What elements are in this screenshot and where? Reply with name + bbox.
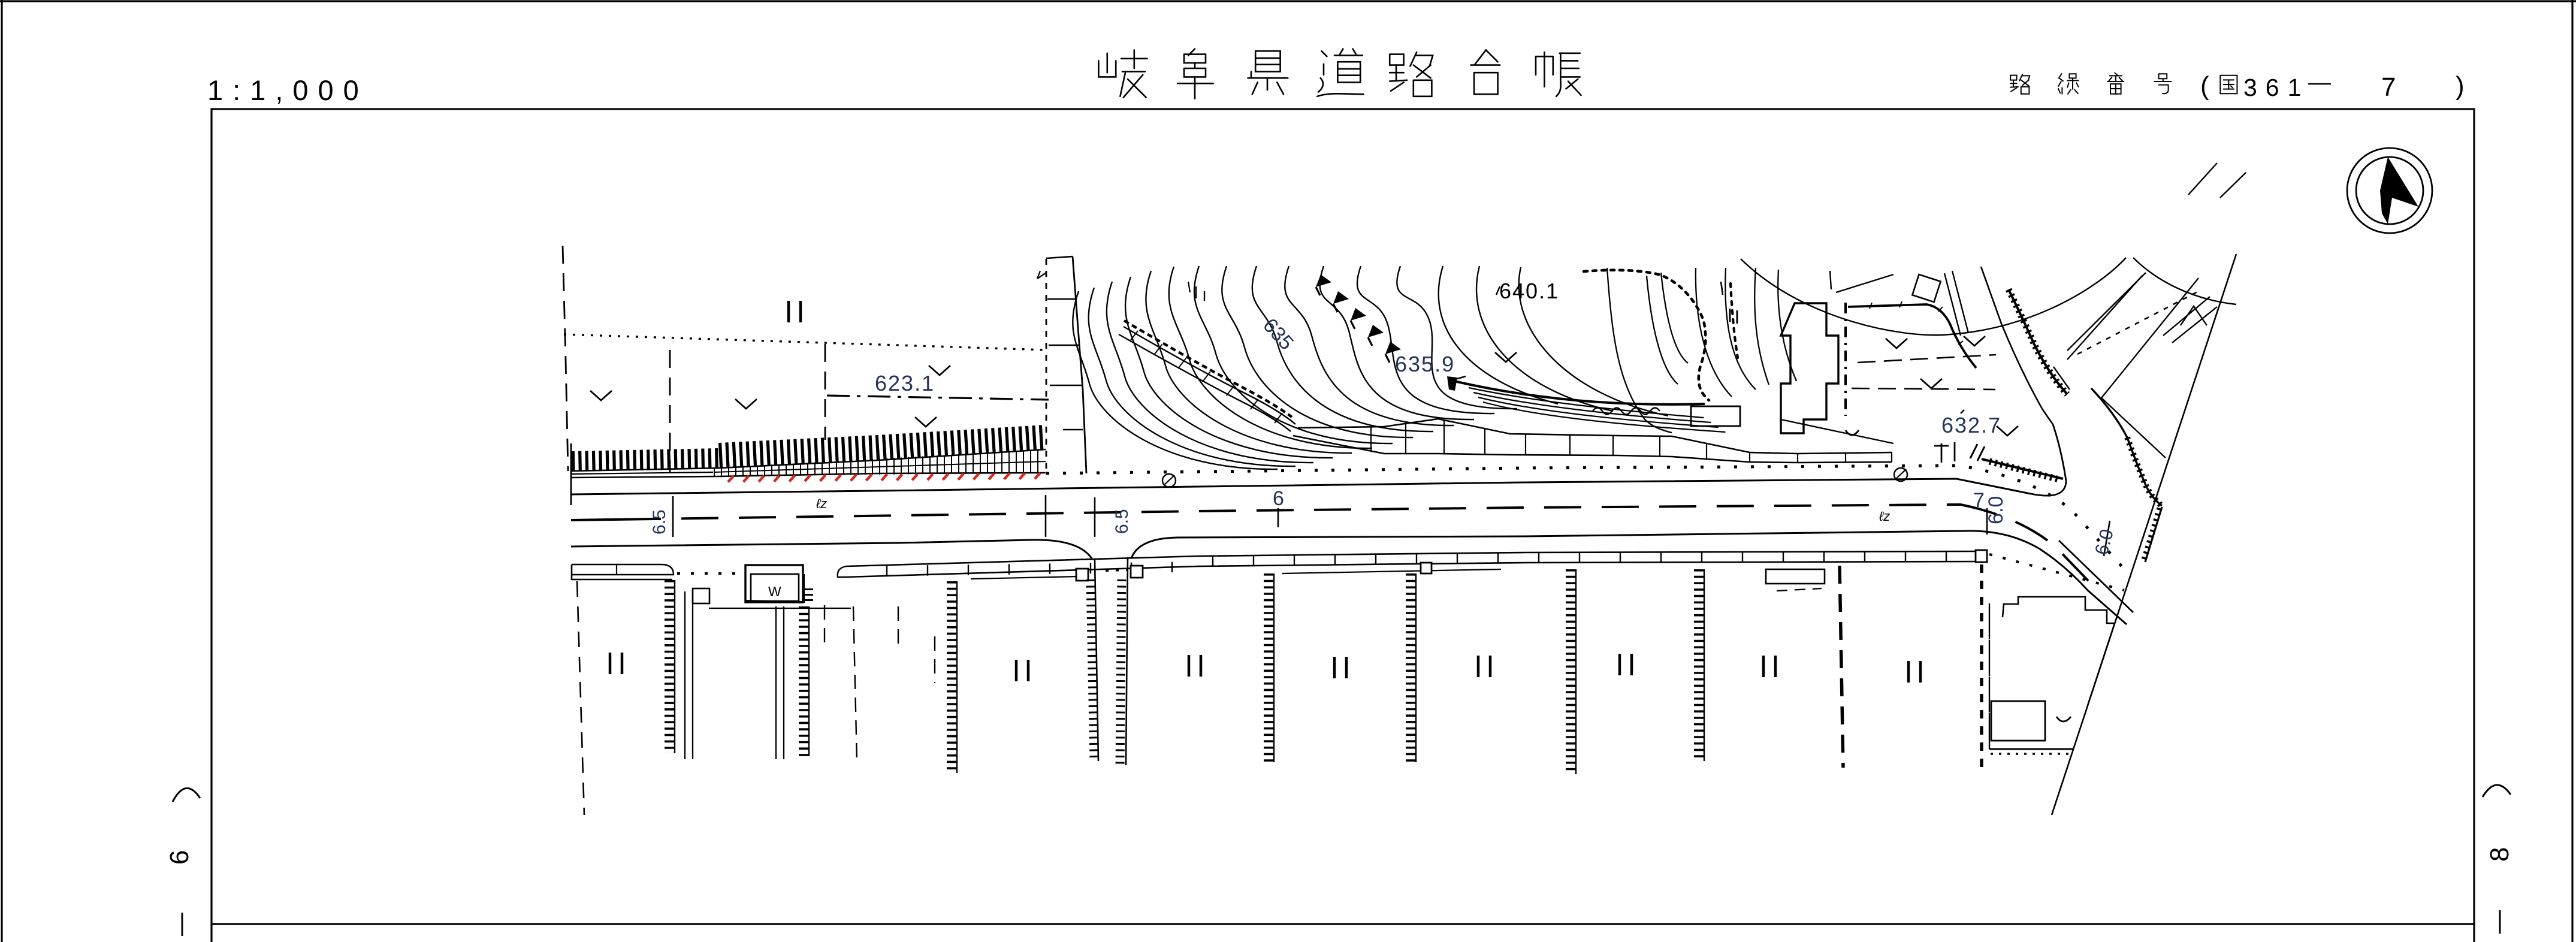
svg-text:W: W bbox=[768, 584, 781, 599]
svg-text:623.1: 623.1 bbox=[875, 371, 935, 395]
svg-text:7: 7 bbox=[1973, 489, 1985, 512]
svg-text:6.5: 6.5 bbox=[650, 509, 669, 535]
svg-text:640.1: 640.1 bbox=[1499, 279, 1559, 303]
svg-text:7: 7 bbox=[2381, 73, 2396, 102]
svg-text:6: 6 bbox=[165, 850, 194, 865]
svg-text:6.5: 6.5 bbox=[1112, 509, 1132, 534]
svg-text:ℓz: ℓz bbox=[1879, 509, 1890, 524]
svg-text:6.0: 6.0 bbox=[1985, 496, 2007, 524]
svg-text:361: 361 bbox=[2243, 74, 2309, 101]
svg-text:8: 8 bbox=[2485, 847, 2514, 862]
svg-text:): ) bbox=[2456, 71, 2465, 101]
svg-text:6: 6 bbox=[1273, 487, 1284, 510]
svg-text:ℓz: ℓz bbox=[816, 496, 827, 511]
svg-text:635.9: 635.9 bbox=[1395, 352, 1455, 376]
svg-text:(: ( bbox=[2200, 71, 2209, 101]
svg-text:632.7: 632.7 bbox=[1941, 413, 2001, 437]
svg-text:1:1,000: 1:1,000 bbox=[207, 74, 369, 106]
